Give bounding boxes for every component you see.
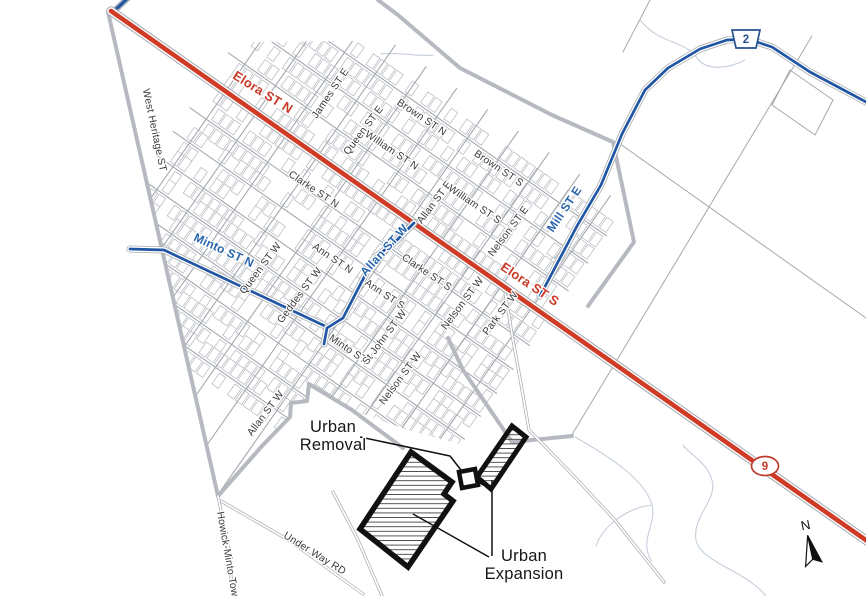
label-west-heritage-st: West Heritage ST [140, 88, 168, 173]
north-label: N [799, 517, 811, 534]
label-howick-minto-townline: Howick-Minto Townline [214, 511, 244, 596]
highway-2-shield: 2 [732, 30, 760, 48]
street-grid [28, 0, 614, 589]
map-canvas: James ST EQueen ST EWilliam ST NBrown ST… [0, 0, 866, 596]
urban-expansion-main-area [360, 452, 453, 567]
highway-9-shield: 9 [752, 457, 779, 476]
rural-lot-lines [570, 0, 866, 438]
north-arrow: N [796, 516, 823, 566]
urban-removal-label-line2: Removal [300, 436, 367, 454]
urban-expansion-label-line1: Urban [501, 547, 547, 565]
urban-removal-label-line1: Urban [310, 418, 356, 436]
label-under-way-rd: Under Way RD [281, 530, 347, 577]
highway-shields: 29 [732, 30, 779, 476]
urban-expansion-strip-area [477, 426, 526, 489]
urban-expansion-label-line2: Expansion [485, 565, 564, 583]
urban-removal-area [459, 469, 478, 488]
highway-2-shield-number: 2 [743, 34, 749, 46]
highway-9-shield-number: 9 [762, 461, 768, 473]
urban-areas [360, 426, 526, 567]
town-map: James ST EQueen ST EWilliam ST NBrown ST… [0, 0, 866, 596]
